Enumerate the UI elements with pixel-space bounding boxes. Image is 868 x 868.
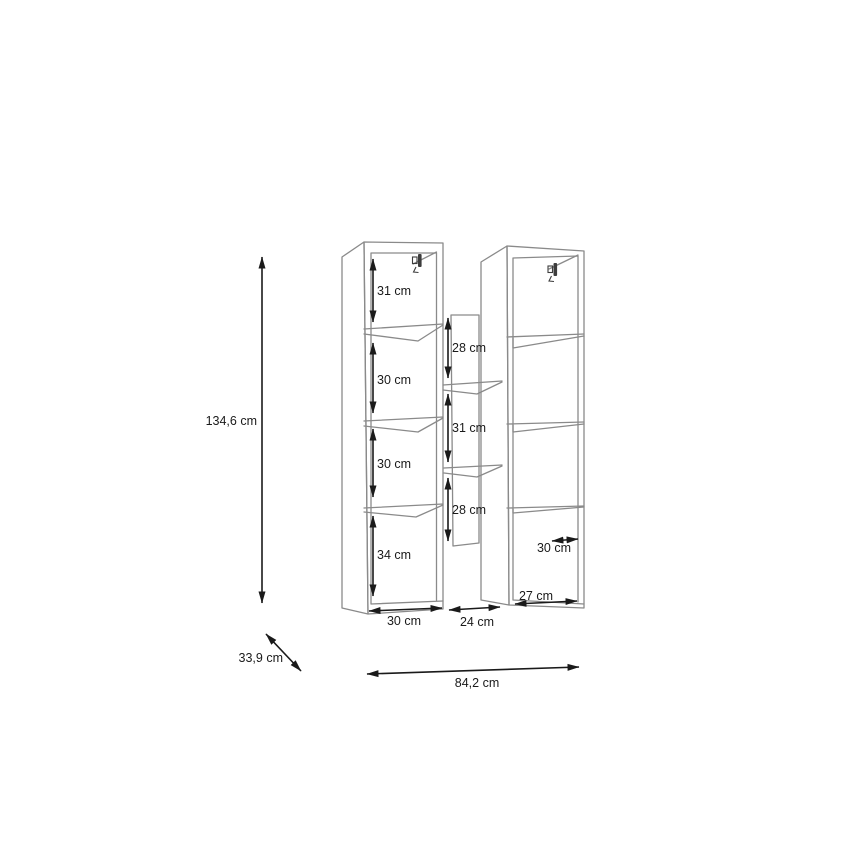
overall-height-label: 134,6 cm <box>206 414 257 428</box>
middle-compartment-3-label: 28 cm <box>452 503 486 517</box>
overall-width-label: 84,2 cm <box>455 676 499 690</box>
left-compartment-2-label: 30 cm <box>377 373 411 387</box>
left-compartment-1-label: 31 cm <box>377 284 411 298</box>
overall-depth-label: 33,9 cm <box>239 651 283 665</box>
right-cabinet-shelf-2 <box>507 422 584 432</box>
wall-bracket-icon-right <box>548 263 557 282</box>
left-cabinet-shelf-2 <box>364 417 443 432</box>
middle-width-label: 24 cm <box>460 615 494 629</box>
wall-brackets <box>413 254 558 282</box>
left-compartment-3-label: 30 cm <box>377 457 411 471</box>
left-cabinet-shelf-3 <box>364 504 443 517</box>
furniture-dimension-drawing: 134,6 cm 33,9 cm 84,2 cm 31 cm 30 cm 30 … <box>0 0 868 868</box>
right-cabinet-shelf-1 <box>507 334 584 348</box>
right-cabinet-shelf-3 <box>507 506 584 513</box>
right-width-label: 27 cm <box>519 589 553 603</box>
diagram-canvas: 134,6 cm 33,9 cm 84,2 cm 31 cm 30 cm 30 … <box>0 0 868 868</box>
dimension-labels: 134,6 cm 33,9 cm 84,2 cm 31 cm 30 cm 30 … <box>206 284 571 690</box>
left-cabinet-shelf-1 <box>364 324 443 341</box>
dim-arrow-middle-width <box>449 607 500 610</box>
wall-bracket-icon-left <box>413 254 422 273</box>
middle-compartment-2-label: 31 cm <box>452 421 486 435</box>
dim-arrow-overall-width <box>367 667 579 674</box>
right-depth-label: 30 cm <box>537 541 571 555</box>
middle-compartment-1-label: 28 cm <box>452 341 486 355</box>
dimension-linework <box>262 257 579 674</box>
left-compartment-4-label: 34 cm <box>377 548 411 562</box>
left-width-label: 30 cm <box>387 614 421 628</box>
